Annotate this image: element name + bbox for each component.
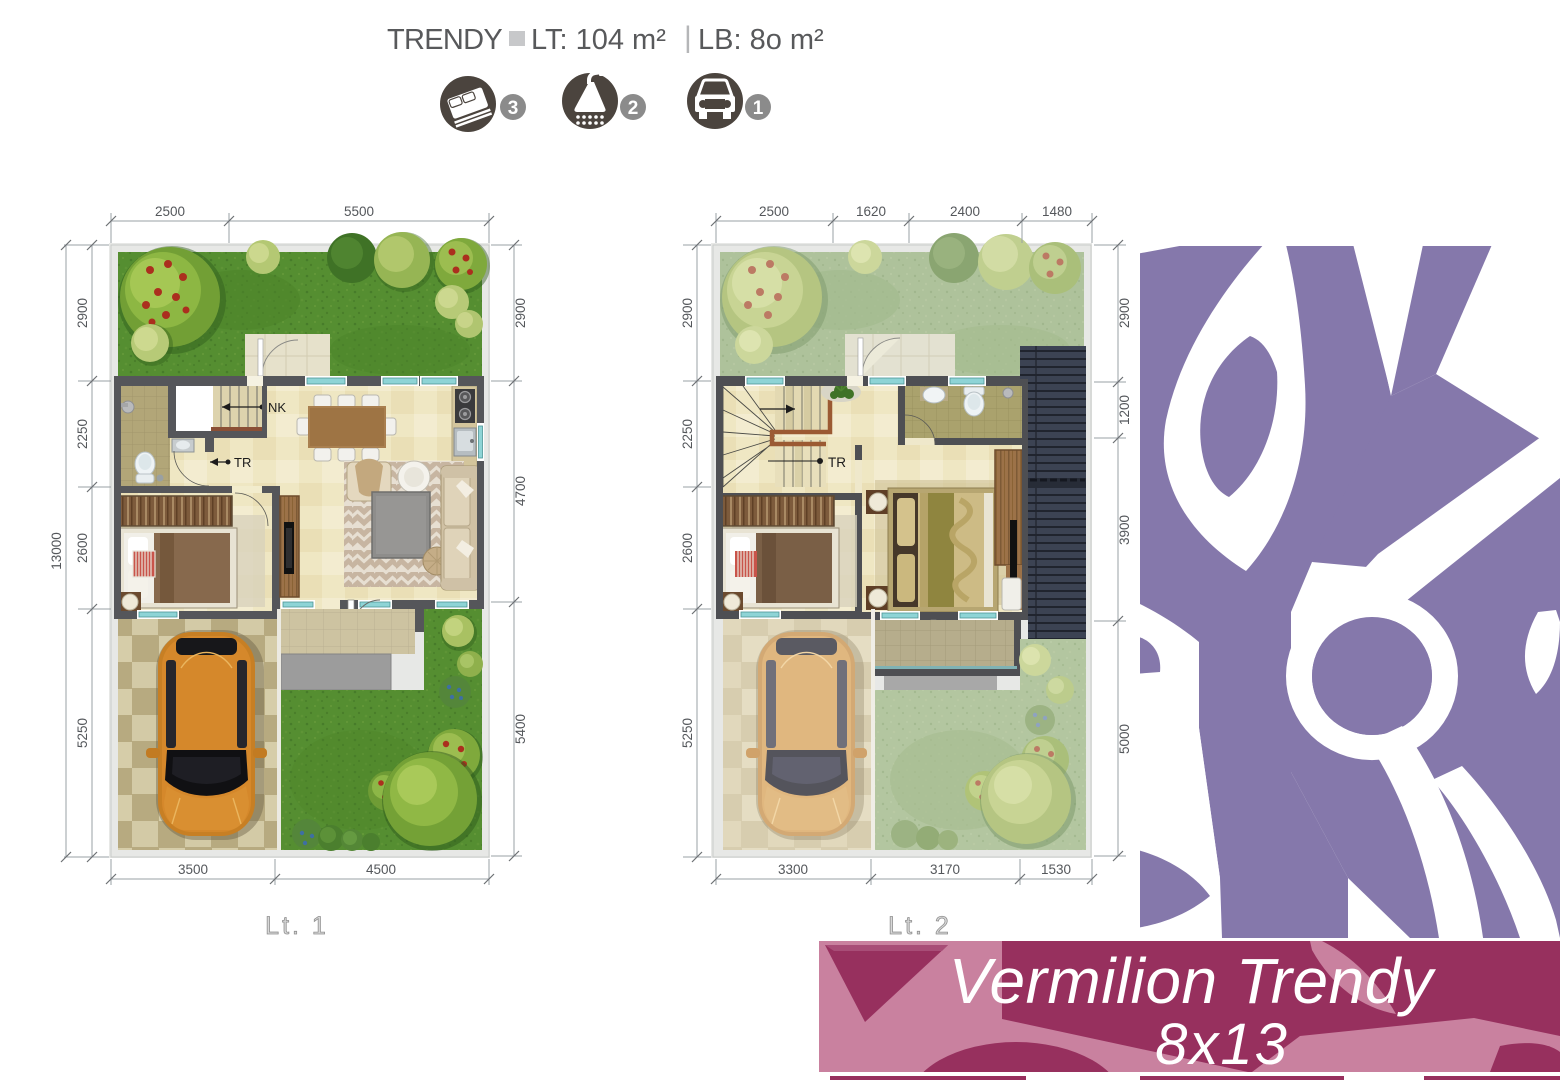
svg-text:2900: 2900 [680,298,695,328]
svg-text:NK: NK [268,400,286,415]
svg-text:1620: 1620 [856,204,886,219]
svg-text:1200: 1200 [1117,395,1132,425]
svg-text:3300: 3300 [778,862,808,877]
svg-text:2600: 2600 [680,533,695,563]
svg-text:4700: 4700 [513,476,528,506]
svg-text:13000: 13000 [49,532,64,570]
svg-text:5250: 5250 [680,718,695,748]
svg-text:Vermilion Trendy: Vermilion Trendy [949,945,1437,1017]
svg-text:3500: 3500 [178,862,208,877]
svg-text:3900: 3900 [1117,515,1132,545]
svg-text:1480: 1480 [1042,204,1072,219]
svg-text:4500: 4500 [366,862,396,877]
svg-text:1530: 1530 [1041,862,1071,877]
svg-text:3: 3 [508,98,519,119]
svg-text:2400: 2400 [950,204,980,219]
svg-text:2600: 2600 [75,533,90,563]
svg-text:Lt. 2: Lt. 2 [888,912,952,940]
svg-text:2500: 2500 [759,204,789,219]
svg-text:2900: 2900 [513,298,528,328]
svg-text:2900: 2900 [1117,298,1132,328]
svg-text:5250: 5250 [75,718,90,748]
svg-text:5500: 5500 [344,204,374,219]
svg-text:5000: 5000 [1117,724,1132,754]
svg-text:2: 2 [628,98,639,119]
svg-text:3170: 3170 [930,862,960,877]
svg-text:2500: 2500 [155,204,185,219]
svg-text:TR: TR [234,455,251,470]
svg-text:5400: 5400 [513,714,528,744]
svg-text:1: 1 [753,98,764,119]
svg-text:2250: 2250 [75,419,90,449]
svg-text:2250: 2250 [680,419,695,449]
svg-text:2900: 2900 [75,298,90,328]
svg-text:TR: TR [828,455,846,470]
svg-text:8x13: 8x13 [1155,1012,1289,1077]
svg-text:Lt. 1: Lt. 1 [265,912,329,940]
